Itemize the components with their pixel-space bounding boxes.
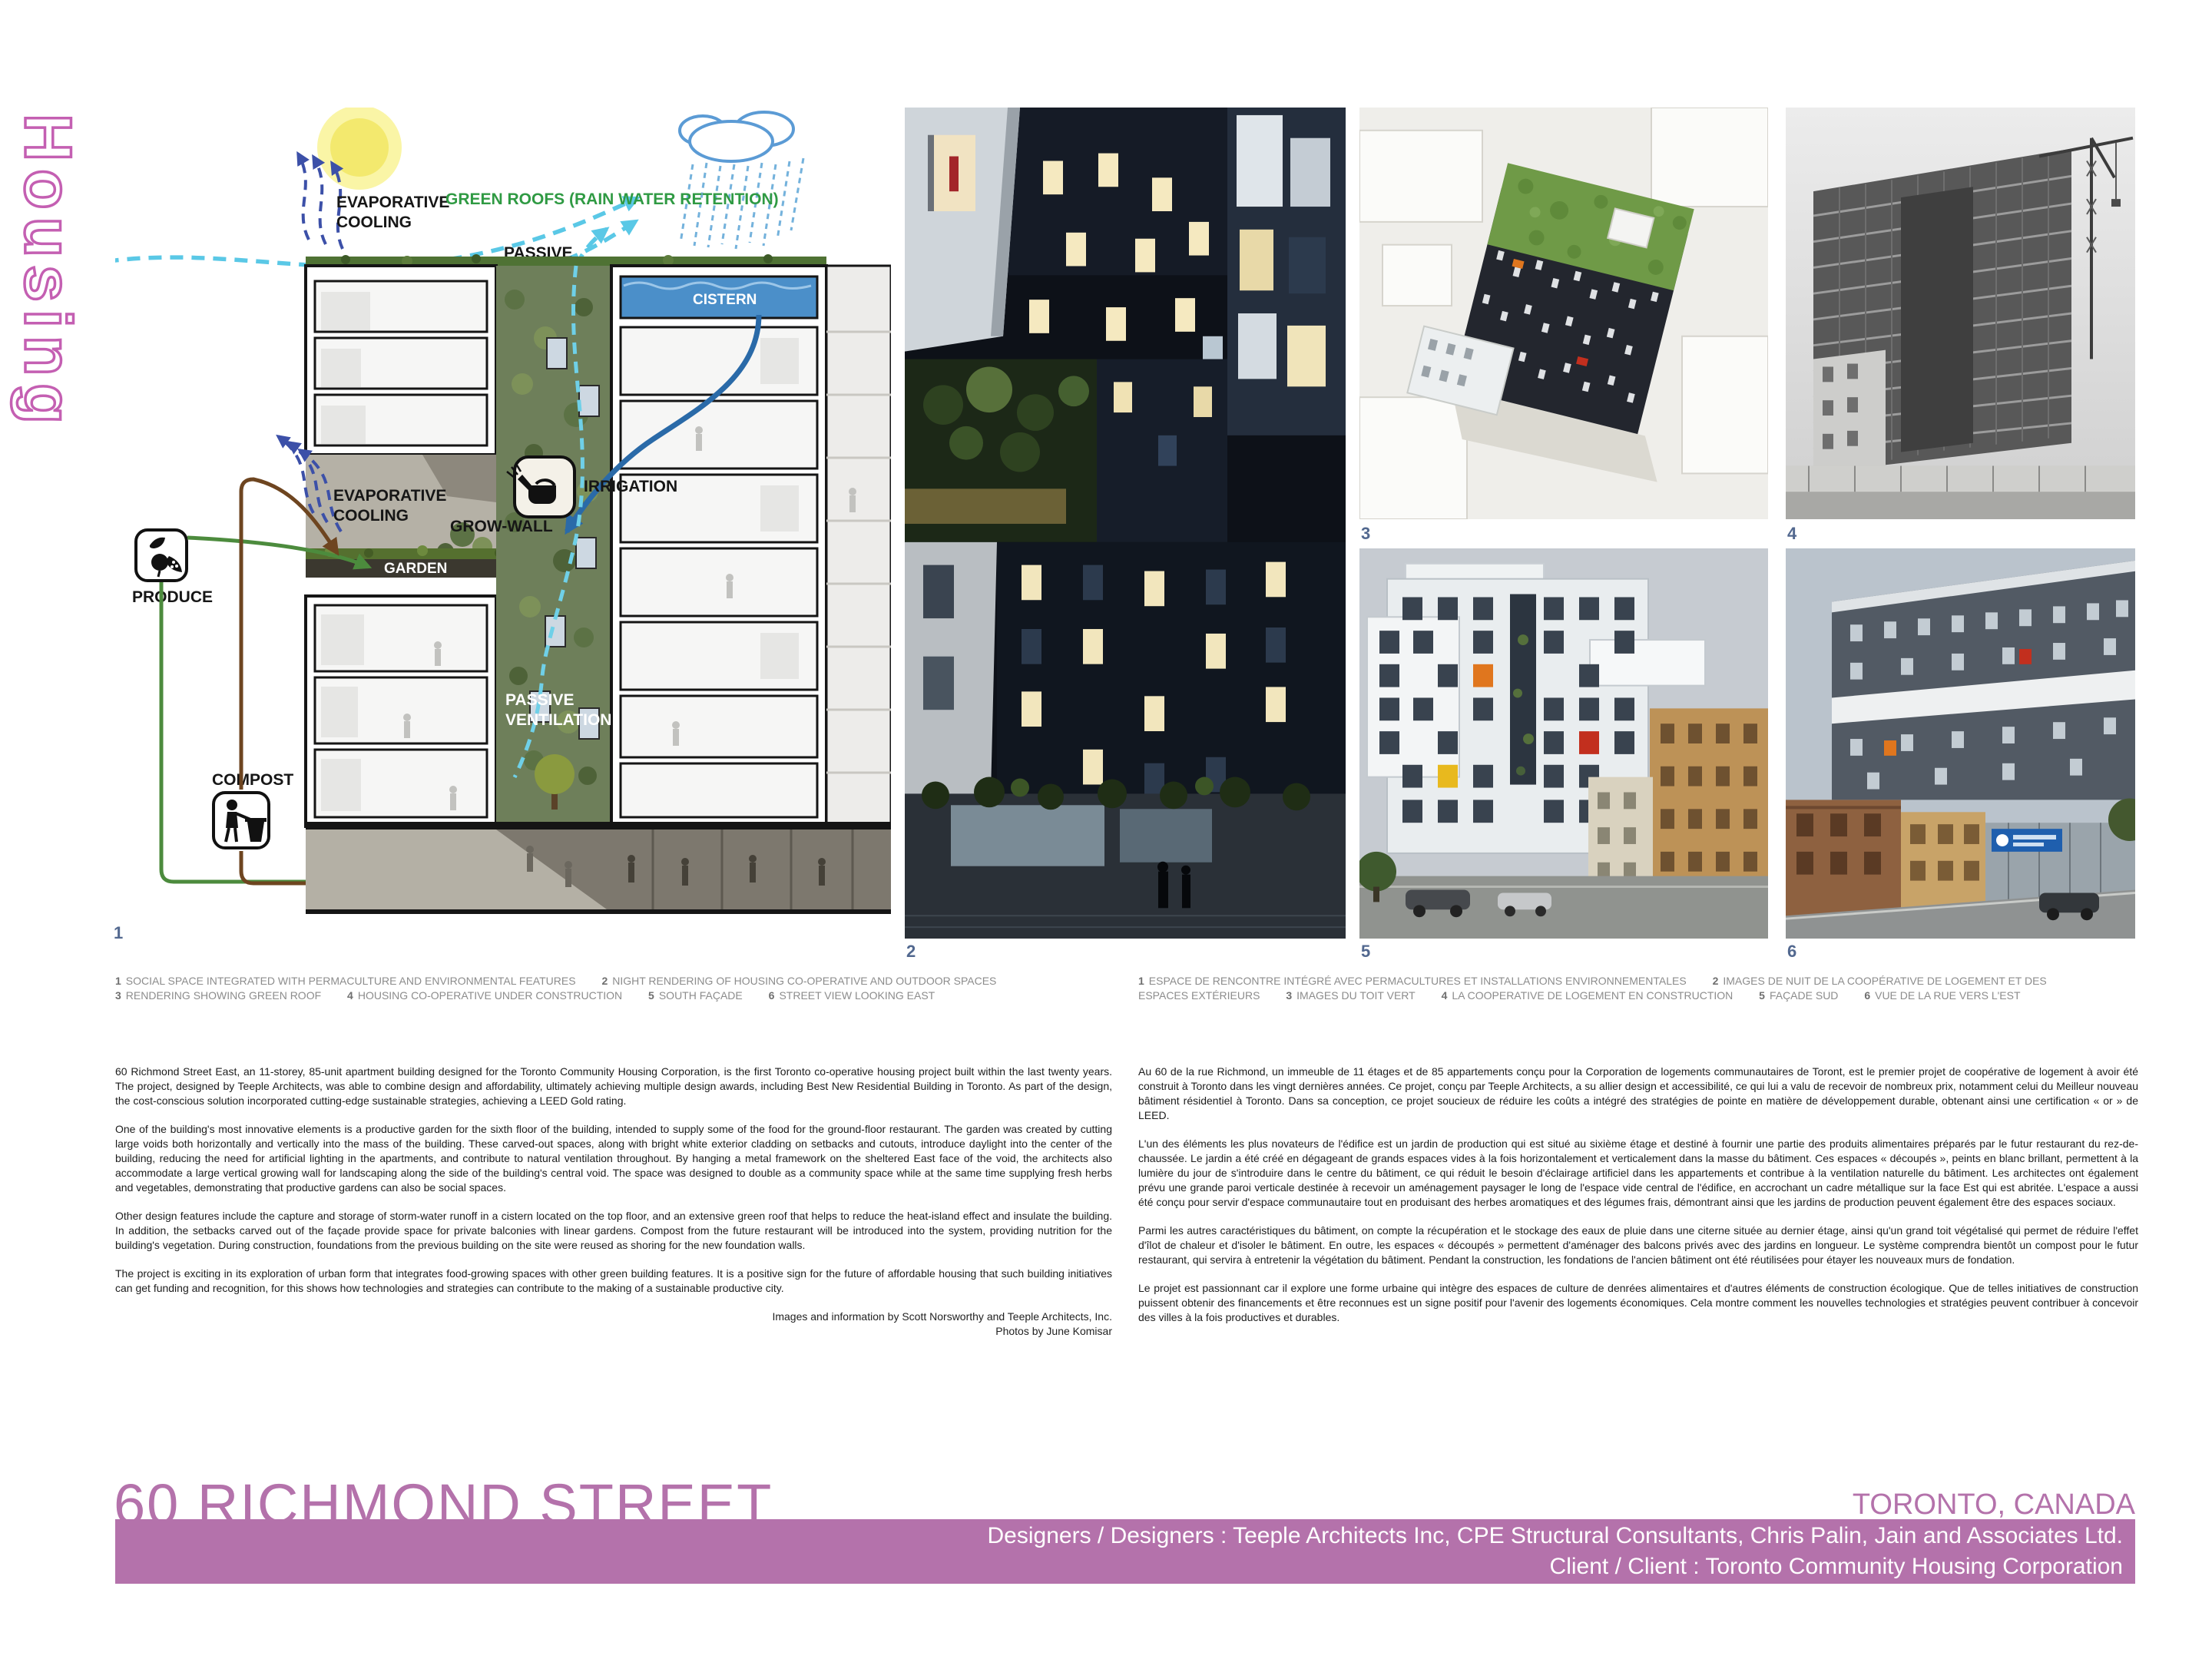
watering-can-icon [507, 457, 575, 517]
construction-photo-illustration [1786, 108, 2135, 519]
credits-bar: Designers / Designers : Teeple Architect… [115, 1519, 2135, 1584]
figure-number-3: 3 [1361, 525, 1370, 542]
caption-item: 6VUE DE LA RUE VERS L'EST [1864, 989, 2020, 1002]
label-cistern: CISTERN [693, 292, 757, 308]
label-irrigation: IRRIGATION [584, 478, 677, 495]
photo-night-rendering [905, 108, 1346, 939]
poster-page: { "sidebar": { "vertical_title": "Housin… [0, 0, 2212, 1659]
sun-icon [317, 108, 402, 190]
label-grow-wall: GROW-WALL [450, 518, 553, 535]
figure-number-4: 4 [1787, 525, 1796, 542]
caption-item: 3RENDERING SHOWING GREEN ROOF [115, 989, 321, 1002]
photo-south-facade [1359, 548, 1768, 939]
left-lower-building-block [306, 596, 496, 826]
diagram-social-space-section: EVAPORATIVE COOLING GREEN ROOFS (RAIN WA… [115, 108, 891, 945]
image-credits: Images and information by Scott Norswort… [115, 1310, 1112, 1339]
captions-french: 1ESPACE DE RENCONTRE INTÉGRÉ AVEC PERMAC… [1138, 974, 2091, 1003]
left-upper-building-block [306, 266, 496, 455]
caption-item: 1ESPACE DE RENCONTRE INTÉGRÉ AVEC PERMAC… [1138, 975, 1687, 987]
figure-number-6: 6 [1787, 943, 1796, 960]
article-fr-paragraph-4: Le projet est passionnant car il explore… [1138, 1281, 2138, 1325]
label-green-roofs: GREEN ROOFS (RAIN WATER RETENTION) [445, 190, 779, 208]
project-location: TORONTO, CANADA [1853, 1488, 2135, 1522]
credit-line-1: Images and information by Scott Norswort… [115, 1310, 1112, 1324]
article-french: Au 60 de la rue Richmond, un immeuble de… [1138, 1065, 2138, 1339]
label-garden: GARDEN [384, 561, 447, 577]
compost-icon [214, 793, 269, 848]
svg-text:VENTILATION: VENTILATION [505, 711, 611, 729]
facade-photo-illustration [1359, 548, 1768, 939]
grow-wall-column [496, 266, 611, 823]
caption-item: 2NIGHT RENDERING OF HOUSING CO-OPERATIVE… [601, 975, 996, 987]
caption-item: 5SOUTH FAÇADE [648, 989, 743, 1002]
figure-number-1: 1 [114, 925, 123, 942]
caption-item: 6STREET VIEW LOOKING EAST [769, 989, 935, 1002]
photo-street-view [1786, 548, 2135, 939]
caption-item: 5FAÇADE SUD [1759, 989, 1838, 1002]
article-en-paragraph-3: Other design features include the captur… [115, 1209, 1112, 1253]
caption-item: 1SOCIAL SPACE INTEGRATED WITH PERMACULTU… [115, 975, 576, 987]
adjacent-building-slice [826, 266, 891, 823]
vertical-housing-title: Housing [9, 114, 85, 432]
captions-english: 1SOCIAL SPACE INTEGRATED WITH PERMACULTU… [115, 974, 1075, 1003]
article-english: 60 Richmond Street East, an 11-storey, 8… [115, 1065, 1112, 1339]
label-compost: COMPOST [212, 771, 293, 789]
night-photo-illustration [905, 108, 1346, 939]
caption-item: 4LA COOPERATIVE DE LOGEMENT EN CONSTRUCT… [1442, 989, 1734, 1002]
caption-item: 4HOUSING CO-OPERATIVE UNDER CONSTRUCTION [347, 989, 622, 1002]
right-building-tower: CISTERN [611, 266, 826, 823]
article-fr-paragraph-2: L'un des éléments les plus novateurs de … [1138, 1137, 2138, 1210]
street-photo-illustration [1786, 548, 2135, 939]
caption-item: 3IMAGES DU TOIT VERT [1286, 989, 1415, 1002]
label-evaporative-cooling-mid: EVAPORATIVE [333, 487, 446, 505]
figure-number-2: 2 [906, 943, 916, 960]
rain-cloud-icon [680, 112, 803, 249]
client-line: Client / Client : Toronto Community Hous… [115, 1551, 2135, 1582]
designers-line: Designers / Designers : Teeple Architect… [115, 1521, 2135, 1551]
article-fr-paragraph-1: Au 60 de la rue Richmond, un immeuble de… [1138, 1065, 2138, 1123]
photo-green-roof-rendering [1359, 108, 1768, 519]
label-produce: PRODUCE [132, 588, 213, 606]
article-en-paragraph-4: The project is exciting in its explorati… [115, 1267, 1112, 1296]
article-en-paragraph-1: 60 Richmond Street East, an 11-storey, 8… [115, 1065, 1112, 1108]
aerial-photo-illustration [1359, 108, 1768, 519]
ground-level [306, 822, 891, 914]
article-fr-paragraph-3: Parmi les autres caractéristiques du bât… [1138, 1224, 2138, 1267]
svg-text:COOLING: COOLING [333, 507, 409, 525]
article-en-paragraph-2: One of the building's most innovative el… [115, 1122, 1112, 1195]
label-evaporative-cooling-top: EVAPORATIVE [336, 194, 449, 211]
photo-under-construction [1786, 108, 2135, 519]
produce-icon [136, 530, 187, 581]
section-diagram-illustration: EVAPORATIVE COOLING GREEN ROOFS (RAIN WA… [115, 108, 891, 945]
figure-number-5: 5 [1361, 943, 1370, 960]
credit-line-2: Photos by June Komisar [115, 1324, 1112, 1339]
label-passive-ventilation-mid: PASSIVE [505, 691, 574, 709]
svg-text:COOLING: COOLING [336, 214, 412, 231]
